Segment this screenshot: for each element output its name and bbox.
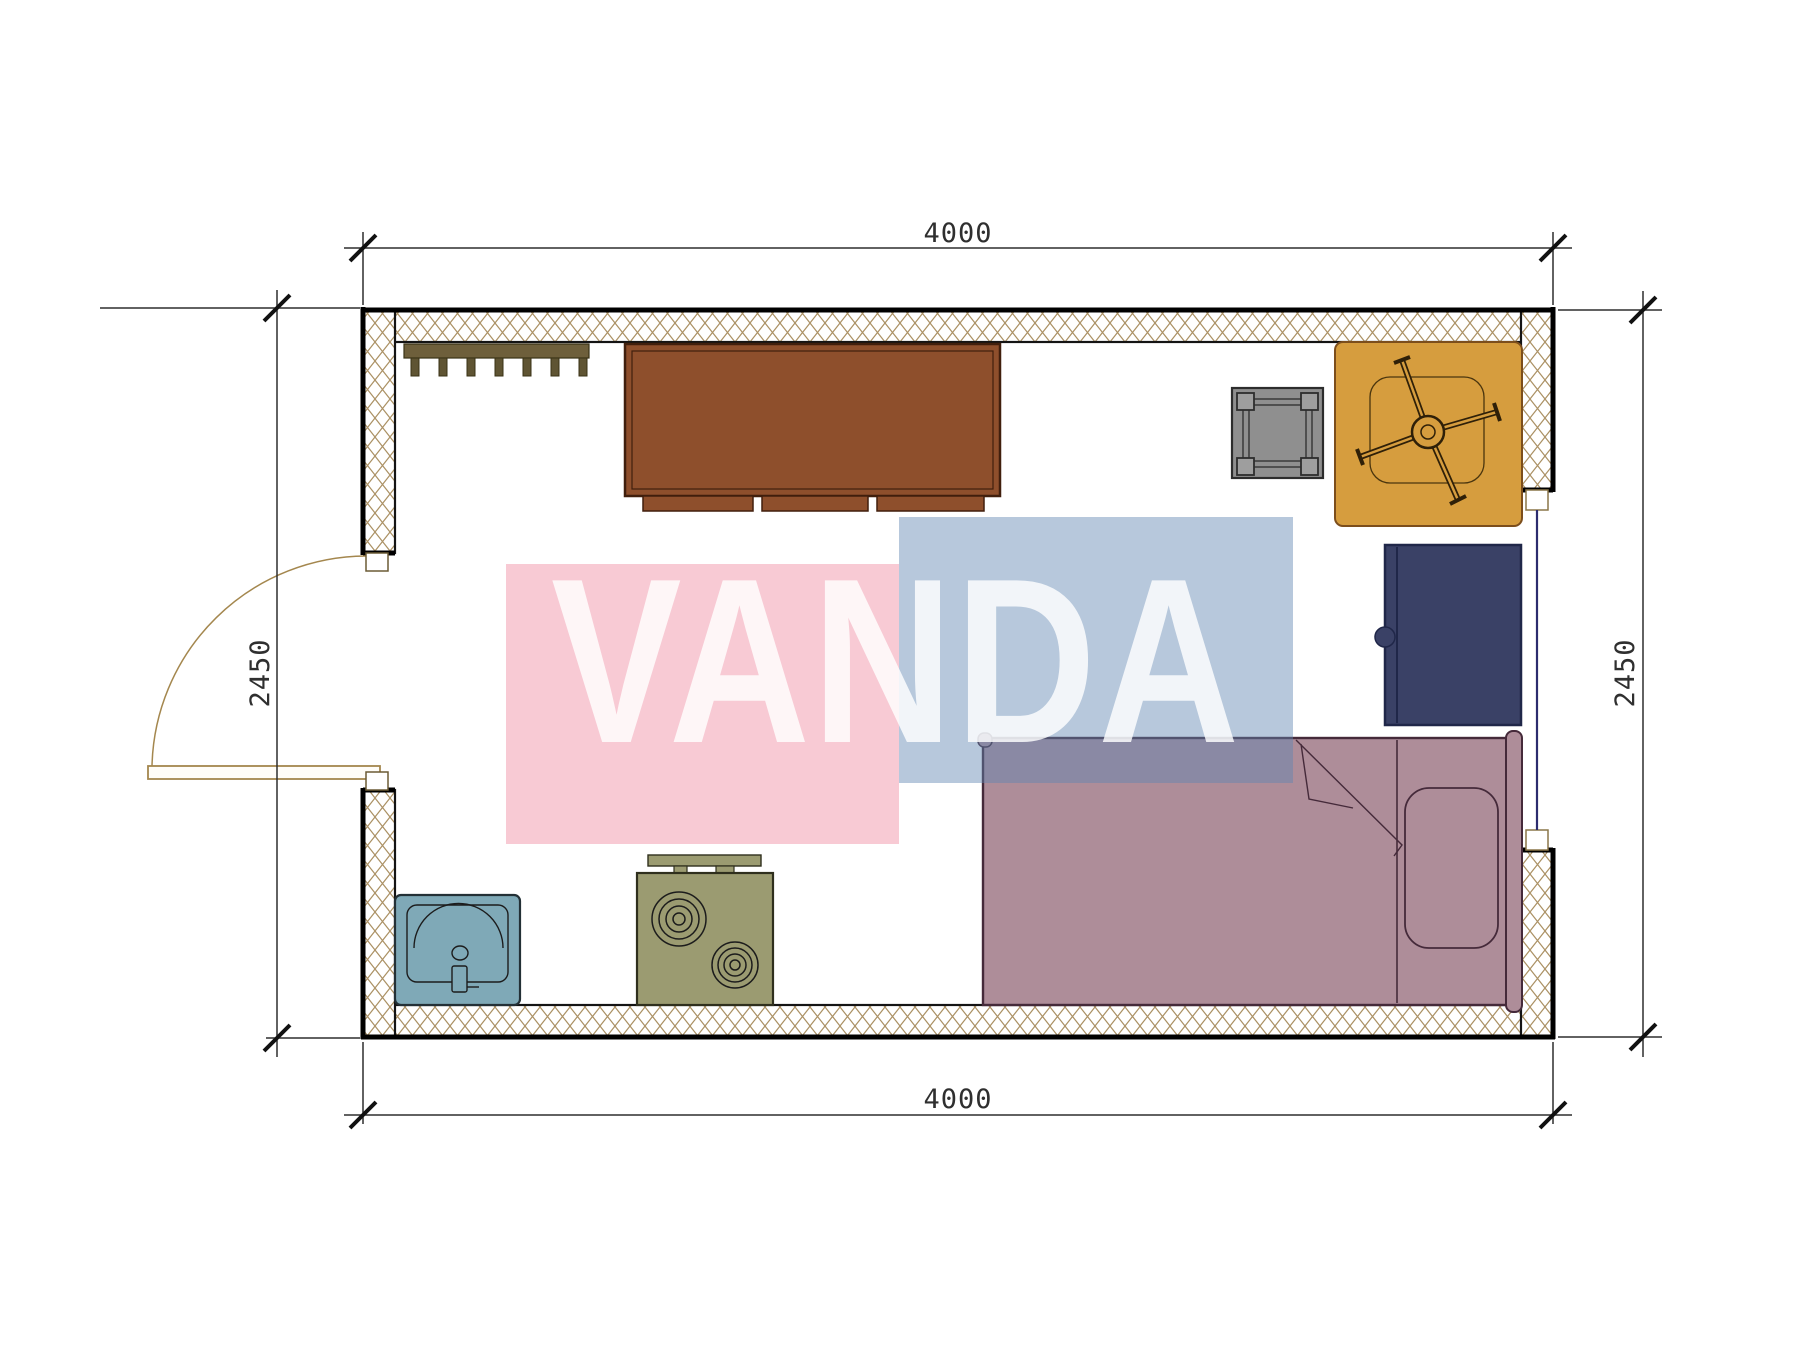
dim-bottom-label: 4000 [923, 1084, 992, 1115]
chair-hub [1412, 416, 1444, 448]
pillow [1405, 788, 1498, 948]
navy-cabinet-knob [1375, 627, 1395, 647]
stove-body [637, 873, 773, 1005]
wall-top [363, 310, 1553, 342]
window-jamb-top [1526, 490, 1548, 510]
watermark-text: VANDA [551, 529, 1241, 792]
wall-left-lower [363, 790, 395, 1037]
coat-rack [404, 344, 589, 376]
dim-left-label: 2450 [245, 638, 276, 707]
navy-cabinet-body [1385, 545, 1521, 725]
door-leaf [148, 766, 380, 779]
door-jamb-top [366, 553, 388, 571]
dimension-left: 2450 [100, 290, 360, 1057]
stove [637, 855, 773, 1005]
dimension-top: 4000 [344, 218, 1572, 305]
headboard [1506, 731, 1522, 1012]
dimension-bottom: 4000 [344, 1042, 1572, 1128]
dimension-right: 2450 [1558, 291, 1662, 1057]
wall-bottom [363, 1005, 1553, 1037]
cabinet [625, 344, 1000, 511]
dim-top-label: 4000 [923, 218, 992, 249]
faucet-spout [452, 966, 467, 992]
navy-cabinet [1375, 545, 1521, 725]
floor-plan-page: VANDA 4000 4000 2450 2450 [0, 0, 1800, 1350]
floor-plan-svg: VANDA 4000 4000 2450 2450 [0, 0, 1800, 1350]
dim-right-label: 2450 [1610, 638, 1641, 707]
window-jamb-bottom [1526, 830, 1548, 850]
washbasin [395, 895, 520, 1005]
coat-rack-bar [404, 344, 589, 358]
wall-left-upper [363, 310, 395, 553]
cabinet-plinth [643, 496, 984, 511]
wall-right-lower [1521, 850, 1553, 1037]
stove-handle [648, 855, 761, 866]
door-jamb-bottom [366, 772, 388, 790]
stool [1232, 388, 1323, 478]
window [1526, 490, 1548, 850]
coat-rack-hooks [411, 358, 587, 376]
wall-right-upper [1521, 310, 1553, 490]
office-chair [1335, 342, 1522, 526]
dim-left-lines [100, 290, 360, 1057]
cabinet-body [625, 344, 1000, 496]
